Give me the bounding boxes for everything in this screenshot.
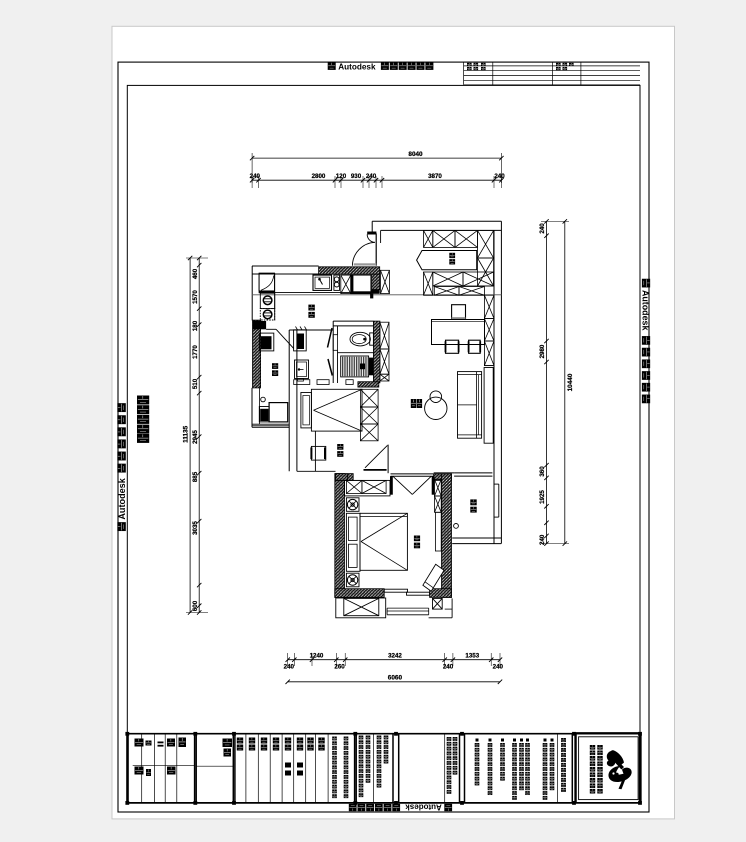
svg-text:885: 885 — [192, 471, 199, 482]
svg-text:Autodesk: Autodesk — [117, 477, 127, 519]
svg-text:240: 240 — [443, 664, 454, 671]
svg-text:8040: 8040 — [408, 151, 423, 158]
svg-text:930: 930 — [351, 173, 362, 180]
svg-text:240: 240 — [539, 223, 546, 234]
svg-text:2945: 2945 — [192, 430, 199, 444]
svg-text:1925: 1925 — [539, 490, 546, 504]
svg-text:260: 260 — [334, 664, 345, 671]
svg-text:360: 360 — [539, 466, 546, 477]
svg-text:510: 510 — [192, 378, 199, 389]
svg-text:11135: 11135 — [183, 425, 190, 443]
svg-text:1240: 1240 — [310, 653, 324, 660]
svg-text:180: 180 — [192, 320, 199, 331]
svg-text:3242: 3242 — [388, 653, 402, 660]
svg-text:240: 240 — [366, 173, 377, 180]
svg-text:120: 120 — [336, 173, 347, 180]
svg-text:6060: 6060 — [388, 675, 403, 682]
svg-text:240: 240 — [284, 664, 295, 671]
svg-text:240: 240 — [250, 173, 261, 180]
svg-text:240: 240 — [493, 664, 504, 671]
svg-text:1353: 1353 — [465, 653, 479, 660]
svg-text:Autodesk: Autodesk — [640, 290, 650, 331]
svg-text:600: 600 — [192, 600, 199, 611]
svg-text:2800: 2800 — [312, 173, 326, 180]
svg-text:10440: 10440 — [567, 373, 574, 391]
svg-text:1770: 1770 — [192, 345, 199, 359]
svg-text:2980: 2980 — [539, 344, 546, 358]
svg-text:240: 240 — [494, 173, 505, 180]
svg-text:460: 460 — [192, 268, 199, 279]
svg-text:3035: 3035 — [192, 521, 199, 535]
svg-text:Autodesk: Autodesk — [338, 62, 376, 71]
svg-text:3870: 3870 — [428, 173, 442, 180]
svg-text:1570: 1570 — [192, 290, 199, 304]
